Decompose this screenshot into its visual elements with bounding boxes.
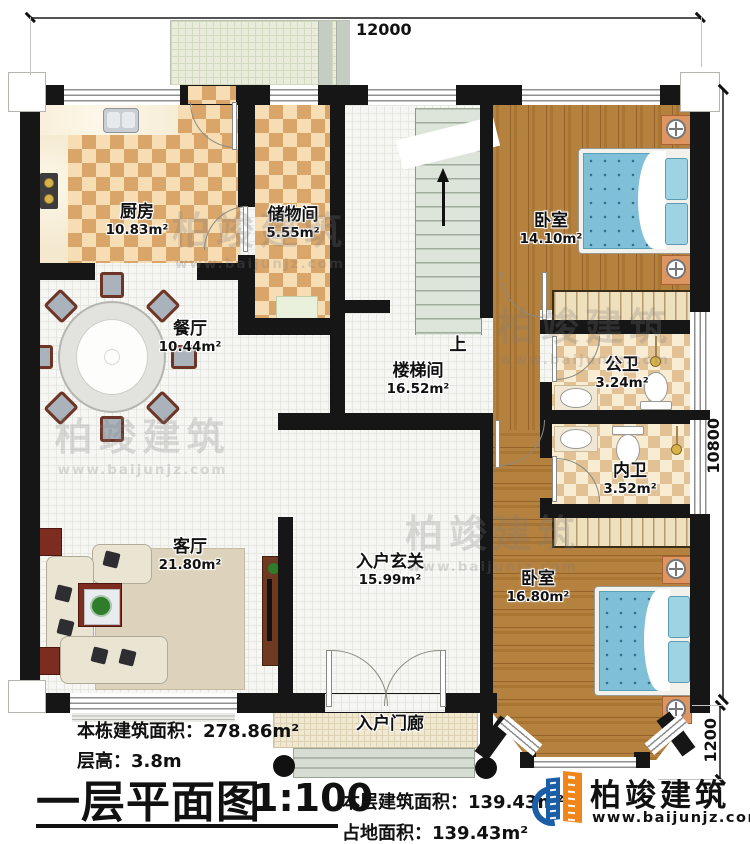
room-name: 餐厅 <box>159 320 222 340</box>
coffee-table <box>78 583 122 627</box>
private-bath-label: 内卫 3.52m² <box>603 462 656 497</box>
bedroom2-closet <box>552 516 692 548</box>
logo-name: 柏竣建筑 <box>590 770 730 815</box>
room-name: 入户门廊 <box>356 715 424 735</box>
room-name: 储物间 <box>266 206 319 226</box>
stove <box>40 173 58 209</box>
bedroom1-sheet-fold <box>638 151 666 249</box>
room-name: 卧室 <box>520 212 583 232</box>
wall-bath-top <box>540 320 692 334</box>
room-name: 客厅 <box>159 538 222 558</box>
nightstand-lamp <box>666 559 686 579</box>
bedroom1-pillow <box>665 158 688 200</box>
dim-guide <box>692 705 722 706</box>
dining-chair <box>100 272 124 298</box>
dim-right-label: 10800 <box>704 418 723 474</box>
wall-bay-stub <box>634 752 650 768</box>
room-area: 16.52m² <box>387 382 450 398</box>
rear-patio-step <box>318 21 332 85</box>
wall-stair-stub <box>345 300 390 313</box>
wall-kitchen-storage <box>238 105 255 207</box>
corner-column-outline <box>8 72 46 112</box>
entry-door-leaf <box>326 650 332 707</box>
public-bath-sink <box>560 388 592 408</box>
public-bath-door-leaf <box>552 336 557 382</box>
room-area: 3.24m² <box>595 376 648 392</box>
stairwell-window <box>368 85 456 105</box>
kitchen-label: 厨房 10.83m² <box>106 203 169 238</box>
stair-arrow-head <box>437 168 449 182</box>
dim-guide <box>701 17 702 67</box>
porch-column <box>273 755 295 777</box>
wall-stair-left <box>330 105 345 430</box>
dining-chair <box>100 416 124 442</box>
dim-line-top <box>30 17 702 19</box>
bedroom1-pillow <box>665 203 688 245</box>
room-area: 16.80m² <box>507 590 570 606</box>
shower-hose <box>676 426 678 446</box>
entry-steps <box>293 748 475 778</box>
burner <box>44 178 54 188</box>
plan-title: 一层平面图 <box>36 766 261 830</box>
room-name: 卧室 <box>507 570 570 590</box>
hall-floor <box>493 310 540 430</box>
bedroom2-pillow <box>668 596 690 638</box>
shower-head <box>671 444 682 455</box>
private-bath-door-leaf <box>552 456 557 502</box>
room-name: 公卫 <box>595 356 648 376</box>
bedroom1-label: 卧室 14.10m² <box>520 212 583 247</box>
porch-label: 入户门廊 <box>356 715 424 735</box>
room-area: 15.99m² <box>356 573 424 589</box>
title-underline <box>36 824 338 828</box>
bedroom1-window <box>522 85 660 105</box>
kitchen-window <box>64 85 180 105</box>
bedroom2-door-leaf <box>495 420 500 468</box>
rear-patio-step <box>336 21 350 85</box>
sink-basin <box>122 112 135 128</box>
bedroom2-sheet-fold <box>644 589 670 691</box>
room-name: 入户玄关 <box>356 553 424 573</box>
land-area-text: 占地面积：139.43m² <box>342 819 528 844</box>
dining-table-center <box>104 349 120 365</box>
wall-kitchen-bottom <box>40 263 95 280</box>
room-area: 10.83m² <box>106 223 169 239</box>
floor-area-text: 本层建筑面积：139.43m² <box>342 788 564 814</box>
public-bath-label: 公卫 3.24m² <box>595 356 648 391</box>
storage-door-leaf <box>243 206 248 252</box>
shower-head <box>650 356 661 367</box>
kitchen-sink <box>103 108 139 133</box>
room-name: 内卫 <box>603 462 656 482</box>
dim-bay-label: 1200 <box>701 718 720 763</box>
stair-up-label: 上 <box>450 336 467 356</box>
sofa-loveseat <box>60 636 168 684</box>
stairwell-label: 楼梯间 16.52m² <box>387 362 450 397</box>
room-name: 厨房 <box>106 203 169 223</box>
nightstand-lamp <box>666 259 686 279</box>
rear-door-leaf <box>232 102 237 150</box>
foyer-label: 入户玄关 15.99m² <box>356 553 424 588</box>
room-area: 10.44m² <box>159 340 222 356</box>
wall-bath-left <box>540 498 552 508</box>
armchair <box>92 544 152 584</box>
dining-label: 餐厅 10.44m² <box>159 320 222 355</box>
private-bath-sink <box>560 429 592 449</box>
bedroom2-label: 卧室 16.80m² <box>507 570 570 605</box>
bedroom2-pillow <box>668 641 690 683</box>
living-window <box>70 693 237 713</box>
room-area: 5.55m² <box>266 226 319 242</box>
entry-door-leaf <box>440 650 446 707</box>
logo-building-blue <box>546 777 560 820</box>
porch-column <box>475 757 497 779</box>
dim-line-right <box>722 90 724 700</box>
tv-screen <box>267 579 272 641</box>
wall-left <box>20 85 40 713</box>
corner-column-outline <box>680 72 720 112</box>
wall-storage-bottom <box>238 318 345 335</box>
living-label: 客厅 21.80m² <box>159 538 222 573</box>
table-plant <box>92 597 110 615</box>
logo-icon <box>532 770 588 830</box>
bedroom1-closet <box>552 290 692 322</box>
wall-foyer-left <box>278 517 293 709</box>
logo: 柏竣建筑 www.baijunjz.com <box>532 770 742 832</box>
storage-window <box>270 85 318 105</box>
stair-direction-arrow <box>442 180 445 226</box>
sink-basin <box>107 112 120 128</box>
up-text: 上 <box>450 336 467 356</box>
corner-column-outline <box>8 680 46 713</box>
public-bath-window <box>690 312 710 410</box>
dining-table <box>58 301 166 413</box>
logo-url: www.baijunjz.com <box>592 810 750 826</box>
room-area: 21.80m² <box>159 558 222 574</box>
shower-hose <box>655 336 657 358</box>
burner <box>44 194 54 204</box>
wall-bath-mid <box>540 410 692 424</box>
wall-stair-right <box>480 98 493 318</box>
room-area: 14.10m² <box>520 232 583 248</box>
total-area-text: 本栋建筑面积：278.86m² <box>77 717 299 743</box>
logo-building-orange <box>563 771 582 823</box>
dim-top-label: 12000 <box>356 20 412 39</box>
wall-bath-bottom <box>540 504 692 518</box>
wall-foyer-right <box>480 413 493 753</box>
floor-plan-canvas: 厨房 10.83m² 储物间 5.55m² 餐厅 10.44m² 卧室 14.1… <box>0 0 750 844</box>
nightstand-lamp <box>666 119 686 139</box>
room-area: 3.52m² <box>603 482 656 498</box>
wall-foyer-top <box>278 413 493 430</box>
public-bath-toilet-tank <box>640 401 672 410</box>
dim-guide <box>30 17 31 75</box>
storage-label: 储物间 5.55m² <box>266 206 319 241</box>
bedroom1-door-leaf <box>542 272 547 320</box>
room-name: 楼梯间 <box>387 362 450 382</box>
